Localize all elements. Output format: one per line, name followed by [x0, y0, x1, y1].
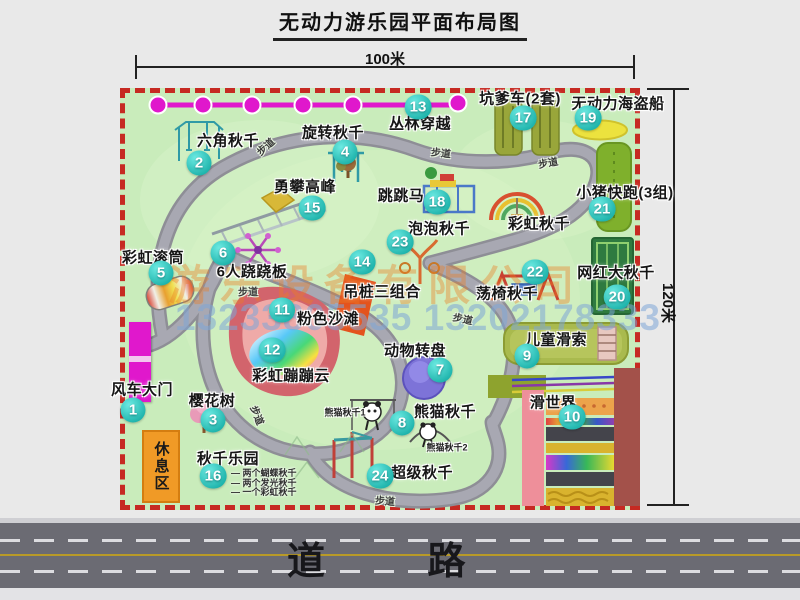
rest-area: 休息区 — [142, 430, 180, 503]
park-plan-page: 无动力游乐园平面布局图 100米 120米 — [0, 0, 800, 600]
page-title: 无动力游乐园平面布局图 — [273, 6, 527, 41]
rest-area-label: 休息区 — [151, 441, 172, 492]
windmill-gate-icon — [129, 322, 151, 402]
dimension-width-line: 100米 — [135, 66, 635, 68]
watermark-phone: 13233805535 13202178333 — [175, 297, 661, 339]
dimension-height-label: 120米 — [658, 283, 679, 323]
swing-park-notes: — 两个蝴蝶秋千— 两个发光秋千— 一个彩虹秋千 — [231, 469, 297, 498]
title-wrap: 无动力游乐园平面布局图 — [0, 6, 800, 41]
dimension-tick — [647, 88, 689, 90]
road-edge — [0, 518, 800, 523]
dimension-width-label: 100米 — [135, 48, 635, 69]
gate-slot — [129, 356, 151, 362]
swing-park-note: — 一个彩虹秋千 — [231, 488, 297, 498]
dimension-height-line: 120米 — [673, 88, 675, 506]
dimension-tick — [647, 504, 689, 506]
road-label: 道 路 — [287, 530, 512, 585]
road-shoulder — [0, 588, 800, 600]
